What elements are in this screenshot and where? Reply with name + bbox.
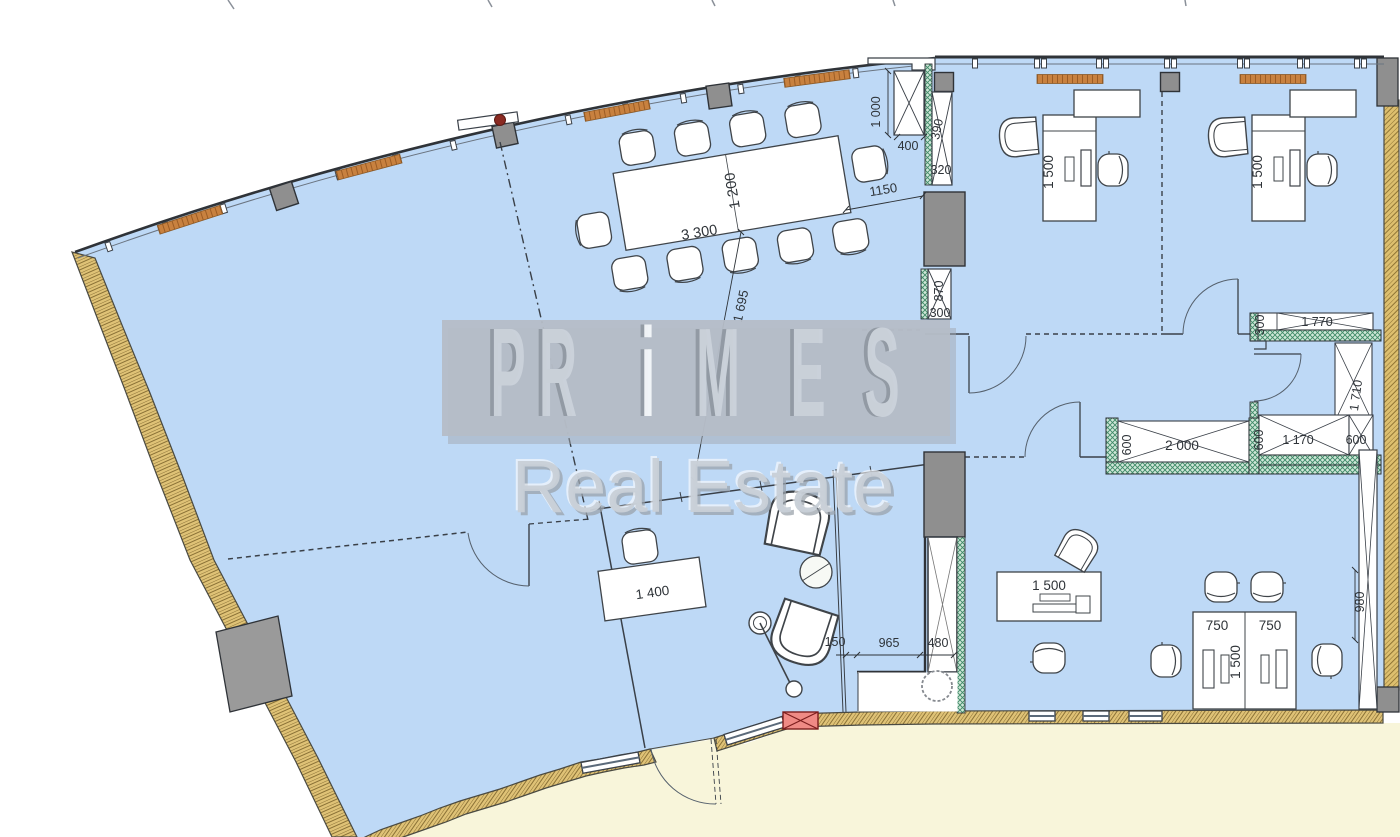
svg-text:1 500: 1 500	[1250, 155, 1265, 189]
svg-text:980: 980	[1353, 592, 1367, 613]
svg-text:1 170: 1 170	[1282, 433, 1313, 447]
svg-text:E: E	[790, 304, 825, 444]
svg-text:1 500: 1 500	[1041, 155, 1056, 189]
svg-text:Real Estate: Real Estate	[512, 445, 895, 528]
svg-text:600: 600	[1346, 433, 1367, 447]
svg-text:i: i	[641, 304, 656, 444]
svg-text:1 500: 1 500	[1032, 578, 1066, 593]
svg-text:320: 320	[931, 163, 952, 177]
svg-text:600: 600	[1120, 435, 1134, 456]
svg-text:600: 600	[1252, 430, 1266, 451]
svg-text:2 000: 2 000	[1165, 438, 1199, 453]
svg-text:400: 400	[898, 139, 919, 153]
svg-text:750: 750	[1259, 618, 1282, 633]
svg-text:1 000: 1 000	[869, 96, 883, 127]
svg-text:R: R	[539, 304, 577, 444]
svg-text:P: P	[490, 304, 525, 444]
svg-text:M: M	[696, 304, 740, 444]
svg-text:870: 870	[932, 281, 946, 302]
svg-text:750: 750	[1206, 618, 1229, 633]
svg-text:300: 300	[930, 306, 951, 320]
svg-text:150: 150	[825, 635, 846, 649]
svg-text:1 500: 1 500	[1228, 645, 1243, 679]
svg-text:1 770: 1 770	[1301, 315, 1332, 329]
svg-text:300: 300	[1253, 315, 1267, 336]
svg-text:S: S	[864, 304, 899, 444]
svg-text:965: 965	[879, 636, 900, 650]
svg-text:480: 480	[928, 636, 949, 650]
